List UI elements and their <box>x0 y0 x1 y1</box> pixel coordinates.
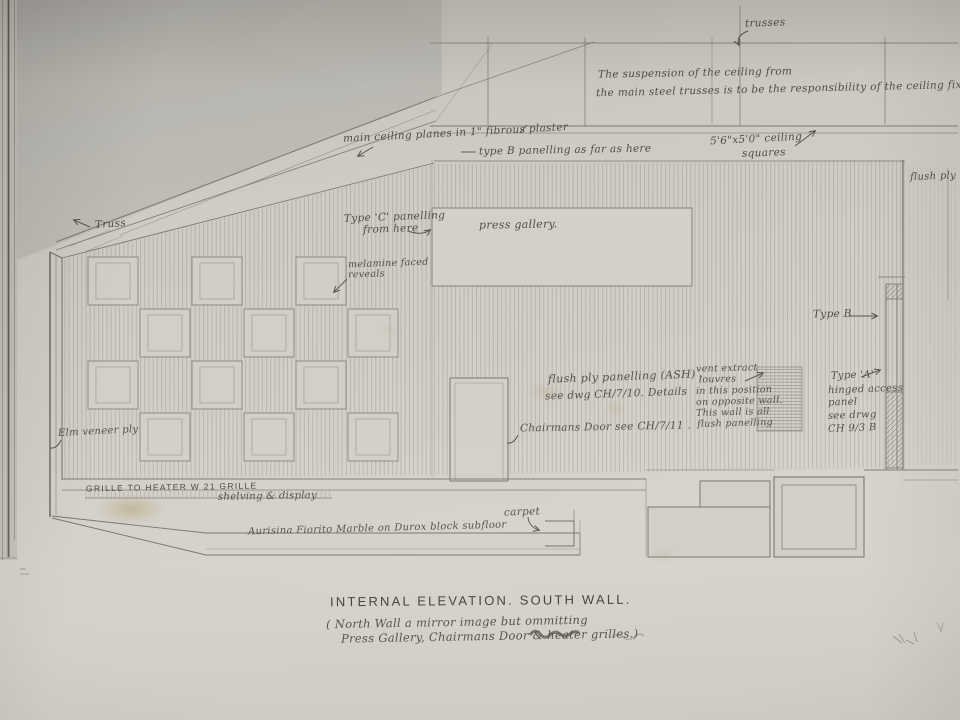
note-trusses: trusses <box>745 17 786 29</box>
note-shelving-display: shelving & display <box>218 491 317 503</box>
note-truss: Truss <box>95 218 127 231</box>
note-type-c-line2: from here <box>363 223 419 236</box>
note-ceiling-squares-line2: squares <box>742 147 786 160</box>
note-type-a-line4: see drwg <box>828 410 877 422</box>
chairmans-door <box>450 378 508 481</box>
note-type-a-line5: CH 9/3 B <box>828 423 877 435</box>
note-flush-ply-edge: flush ply p <box>910 171 960 183</box>
note-press-gallery: press gallery. <box>479 218 558 231</box>
adjacent-sheet-strip <box>0 0 29 574</box>
note-vent-line2: louvres <box>699 375 737 386</box>
photo-of-architectural-drawing: trusses The suspension of the ceiling fr… <box>0 0 960 720</box>
note-type-a-line1: Type 'A' <box>831 370 874 382</box>
roof-truss-lines <box>430 6 958 126</box>
note-carpet: carpet <box>504 506 540 518</box>
far-right-wall-hatch <box>906 167 958 465</box>
steps-and-plinth <box>648 477 864 557</box>
press-gallery-box <box>432 208 692 286</box>
note-vent-line6: flush panelling <box>697 418 773 430</box>
drawing-title: INTERNAL ELEVATION. SOUTH WALL. <box>330 593 632 609</box>
note-type-b-right: Type B <box>813 309 852 321</box>
note-type-a-line3: panel <box>828 397 858 409</box>
left-wall-section <box>50 252 62 517</box>
elevation-linework <box>0 0 960 720</box>
note-melamine-line2: reveals <box>348 269 385 280</box>
